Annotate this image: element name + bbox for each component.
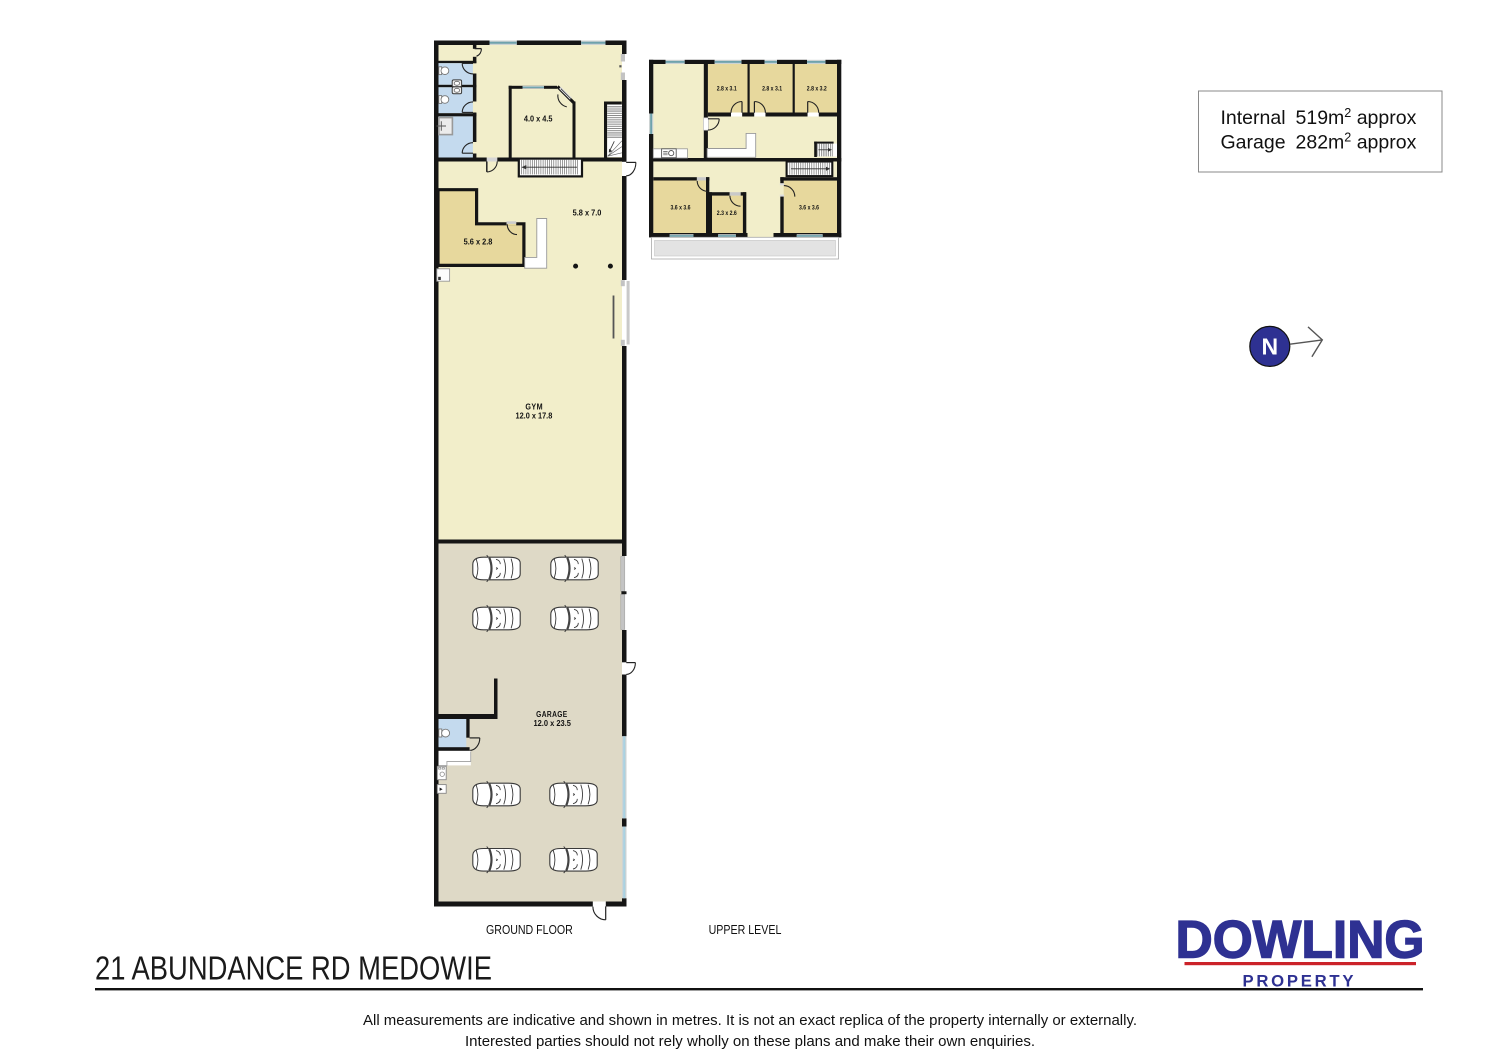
svg-text:All measurements are indicativ: All measurements are indicative and show… xyxy=(363,1013,1137,1029)
svg-text:N: N xyxy=(1261,334,1278,360)
svg-text:2.3 x 2.6: 2.3 x 2.6 xyxy=(717,210,737,217)
svg-text:2.8 x 3.1: 2.8 x 3.1 xyxy=(762,86,782,93)
svg-text:Internal519m2 approx: Internal519m2 approx xyxy=(1221,106,1417,129)
svg-text:UPPER LEVEL: UPPER LEVEL xyxy=(709,922,782,937)
svg-text:21 ABUNDANCE RD MEDOWIE: 21 ABUNDANCE RD MEDOWIE xyxy=(95,951,492,988)
svg-text:Garage282m2 approx: Garage282m2 approx xyxy=(1221,130,1417,153)
svg-text:2.8 x 3.2: 2.8 x 3.2 xyxy=(807,86,827,93)
svg-text:5.6 x 2.8: 5.6 x 2.8 xyxy=(464,236,493,246)
svg-text:3.6 x 3.6: 3.6 x 3.6 xyxy=(799,204,819,211)
svg-text:GROUND FLOOR: GROUND FLOOR xyxy=(486,922,573,937)
svg-text:5.8 x 7.0: 5.8 x 7.0 xyxy=(573,207,602,217)
svg-text:4.0 x 4.5: 4.0 x 4.5 xyxy=(524,114,553,124)
svg-text:2.8 x 3.1: 2.8 x 3.1 xyxy=(717,86,737,93)
svg-text:Interested parties should not: Interested parties should not rely wholl… xyxy=(465,1034,1035,1050)
svg-text:3.6 x 3.6: 3.6 x 3.6 xyxy=(671,204,691,211)
svg-text:12.0 x 17.8: 12.0 x 17.8 xyxy=(516,411,553,421)
svg-text:DOWLING: DOWLING xyxy=(1176,911,1425,970)
svg-text:PROPERTY: PROPERTY xyxy=(1243,972,1354,991)
svg-text:12.0 x 23.5: 12.0 x 23.5 xyxy=(534,718,572,728)
